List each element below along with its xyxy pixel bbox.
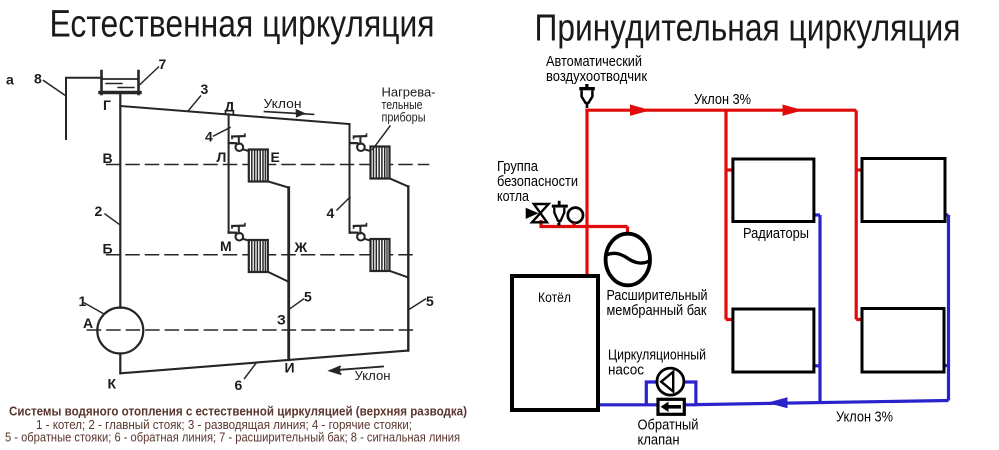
svg-text:В: В	[103, 150, 113, 166]
svg-text:8: 8	[34, 71, 42, 87]
svg-text:М: М	[220, 238, 232, 254]
svg-text:6: 6	[235, 377, 243, 393]
svg-text:насос: насос	[608, 362, 644, 379]
svg-text:А: А	[83, 315, 93, 331]
svg-text:Уклон: Уклон	[355, 368, 391, 383]
svg-text:З: З	[277, 312, 286, 328]
svg-text:Б: Б	[103, 241, 113, 257]
svg-text:Уклон: Уклон	[264, 96, 302, 111]
svg-text:мембранный бак: мембранный бак	[607, 302, 707, 319]
svg-text:Естественная циркуляция: Естественная циркуляция	[50, 4, 435, 46]
svg-text:Уклон 3%: Уклон 3%	[694, 91, 751, 108]
svg-text:Д: Д	[225, 99, 235, 115]
svg-text:4: 4	[327, 205, 335, 221]
svg-text:Г: Г	[103, 97, 111, 113]
svg-text:Ж: Ж	[294, 239, 308, 255]
svg-text:приборы: приборы	[382, 110, 426, 125]
svg-text:Уклон 3%: Уклон 3%	[836, 409, 893, 426]
svg-text:Котёл: Котёл	[538, 289, 571, 305]
svg-text:1: 1	[79, 293, 87, 309]
svg-text:2: 2	[95, 203, 103, 219]
svg-text:К: К	[108, 376, 117, 392]
svg-text:а: а	[6, 72, 14, 88]
svg-text:Радиаторы: Радиаторы	[743, 225, 809, 242]
svg-text:7: 7	[159, 56, 167, 72]
svg-text:5: 5	[304, 289, 312, 305]
svg-text:Л: Л	[217, 149, 227, 165]
svg-text:И: И	[285, 360, 295, 376]
svg-text:4: 4	[205, 129, 213, 145]
svg-text:клапан: клапан	[638, 432, 680, 449]
svg-text:Е: Е	[271, 149, 280, 165]
svg-text:3: 3	[201, 81, 209, 97]
svg-text:воздухоотводчик: воздухоотводчик	[546, 68, 647, 85]
svg-text:котла: котла	[497, 188, 530, 205]
svg-text:Принудительная циркуляция: Принудительная циркуляция	[535, 8, 961, 50]
svg-text:5 - обратные стояки; 6 - обрат: 5 - обратные стояки; 6 - обратная линия;…	[5, 430, 460, 445]
svg-text:5: 5	[426, 293, 434, 309]
